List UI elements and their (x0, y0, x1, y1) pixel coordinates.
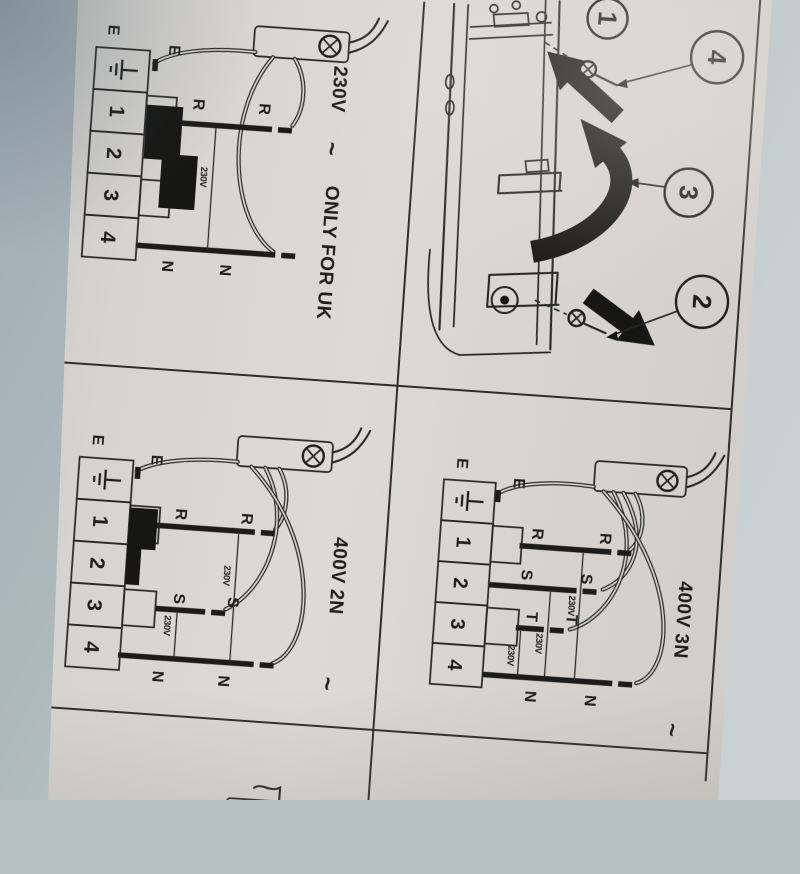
clamp-screw-icon (290, 807, 309, 826)
photo-vignette (0, 0, 800, 800)
photo-of-wiring-instructions: { "photo": { "background_top_color": "#9… (0, 0, 800, 800)
